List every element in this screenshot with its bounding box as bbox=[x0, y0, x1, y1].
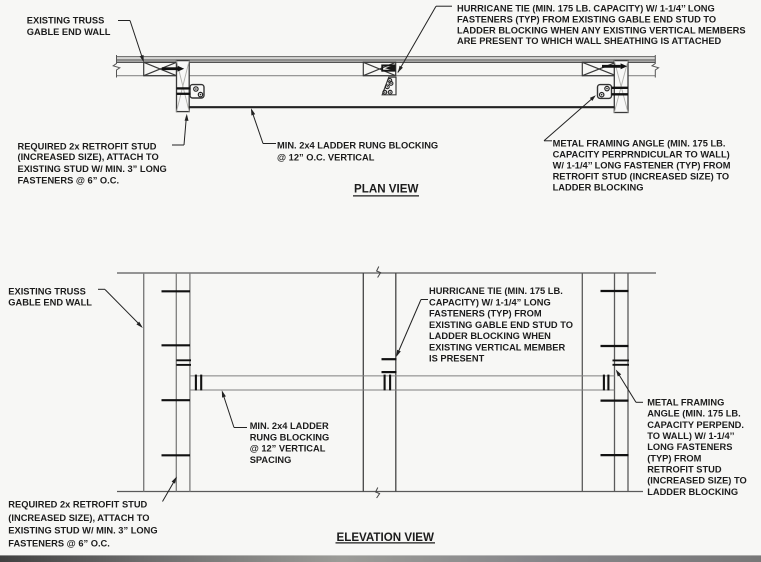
svg-text:TO WALL) W/ 1-1/4’’: TO WALL) W/ 1-1/4’’ bbox=[647, 431, 734, 441]
svg-text:LADDER BLOCKING: LADDER BLOCKING bbox=[647, 487, 738, 497]
svg-text:RETROFIT STUD (INCREASED SIZE): RETROFIT STUD (INCREASED SIZE) TO bbox=[553, 172, 729, 182]
svg-text:MIN. 2x4 LADDER RUNG BLOCKING: MIN. 2x4 LADDER RUNG BLOCKING bbox=[277, 141, 438, 151]
svg-text:REQUIRED 2x RETROFIT STUD: REQUIRED 2x RETROFIT STUD bbox=[18, 141, 157, 151]
svg-text:REQUIRED 2x RETROFIT STUD: REQUIRED 2x RETROFIT STUD bbox=[8, 500, 147, 510]
svg-text:EXISTING TRUSS: EXISTING TRUSS bbox=[27, 16, 105, 26]
svg-text:FASTENERS @ 6” O.C.: FASTENERS @ 6” O.C. bbox=[8, 538, 110, 548]
svg-text:(INCREASED SIZE), ATTACH TO: (INCREASED SIZE), ATTACH TO bbox=[18, 152, 159, 162]
svg-text:FASTENERS (TYP) FROM: FASTENERS (TYP) FROM bbox=[429, 309, 542, 319]
svg-text:FASTENERS (TYP) FROM EXISTING: FASTENERS (TYP) FROM EXISTING GABLE END … bbox=[457, 14, 716, 24]
svg-text:(INCREASED SIZE) TO: (INCREASED SIZE) TO bbox=[647, 476, 747, 486]
svg-text:(TYP) FROM: (TYP) FROM bbox=[647, 454, 701, 464]
svg-text:EXISTING VERTICAL MEMBER: EXISTING VERTICAL MEMBER bbox=[429, 342, 565, 352]
svg-text:EXISTING STUD W/ MIN. 3” LONG: EXISTING STUD W/ MIN. 3” LONG bbox=[8, 526, 157, 536]
svg-text:CAPACITY PERPRNDICULAR TO WALL: CAPACITY PERPRNDICULAR TO WALL) bbox=[553, 149, 730, 159]
svg-text:HURRICANE TIE (MIN. 175 LB.: HURRICANE TIE (MIN. 175 LB. bbox=[429, 286, 563, 296]
svg-text:ANGLE (MIN. 175 LB.: ANGLE (MIN. 175 LB. bbox=[647, 409, 741, 419]
svg-text:EXISTING GABLE END STUD TO: EXISTING GABLE END STUD TO bbox=[429, 320, 573, 330]
svg-text:(INCREASED SIZE), ATTACH TO: (INCREASED SIZE), ATTACH TO bbox=[8, 513, 149, 523]
svg-text:LADDER BLOCKING WHEN ANY EXIST: LADDER BLOCKING WHEN ANY EXISTING VERTIC… bbox=[457, 26, 746, 36]
svg-text:LADDER BLOCKING: LADDER BLOCKING bbox=[553, 183, 644, 193]
svg-text:PLAN VIEW: PLAN VIEW bbox=[354, 183, 418, 196]
svg-text:HURRICANE TIE (MIN. 175 LB. CA: HURRICANE TIE (MIN. 175 LB. CAPACITY) W/… bbox=[457, 3, 715, 13]
svg-text:GABLE END WALL: GABLE END WALL bbox=[27, 27, 111, 37]
svg-text:GABLE END WALL: GABLE END WALL bbox=[8, 297, 92, 307]
svg-text:CAPACITY) W/ 1-1/4” LONG: CAPACITY) W/ 1-1/4” LONG bbox=[429, 297, 551, 307]
svg-text:@ 12” VERTICAL: @ 12” VERTICAL bbox=[250, 444, 326, 454]
svg-text:EXISTING STUD W/ MIN. 3” LONG: EXISTING STUD W/ MIN. 3” LONG bbox=[18, 164, 167, 174]
svg-text:SPACING: SPACING bbox=[250, 455, 292, 465]
svg-text:LADDER BLOCKING WHEN: LADDER BLOCKING WHEN bbox=[429, 331, 551, 341]
svg-text:ARE PRESENT TO WHICH WALL SHEA: ARE PRESENT TO WHICH WALL SHEATHING IS A… bbox=[457, 36, 722, 46]
svg-text:METAL FRAMING: METAL FRAMING bbox=[647, 398, 724, 408]
svg-text:FASTENERS @ 6” O.C.: FASTENERS @ 6” O.C. bbox=[18, 175, 120, 185]
svg-text:MIN. 2x4 LADDER: MIN. 2x4 LADDER bbox=[250, 421, 329, 431]
svg-text:W/ 1-1/4’’ LONG FASTENER (TYP): W/ 1-1/4’’ LONG FASTENER (TYP) FROM bbox=[553, 160, 731, 170]
svg-text:LONG FASTENERS: LONG FASTENERS bbox=[647, 442, 732, 452]
svg-text:IS PRESENT: IS PRESENT bbox=[429, 354, 485, 364]
svg-text:EXISTING TRUSS: EXISTING TRUSS bbox=[8, 287, 86, 297]
svg-text:ELEVATION VIEW: ELEVATION VIEW bbox=[337, 531, 435, 544]
svg-text:RETROFIT STUD: RETROFIT STUD bbox=[647, 465, 722, 475]
svg-text:@ 12” O.C. VERTICAL: @ 12” O.C. VERTICAL bbox=[277, 153, 375, 163]
svg-text:CAPACITY PERPEND.: CAPACITY PERPEND. bbox=[647, 420, 744, 430]
svg-text:RUNG BLOCKING: RUNG BLOCKING bbox=[250, 433, 330, 443]
svg-text:METAL FRAMING ANGLE (MIN. 175: METAL FRAMING ANGLE (MIN. 175 LB. bbox=[553, 138, 726, 148]
